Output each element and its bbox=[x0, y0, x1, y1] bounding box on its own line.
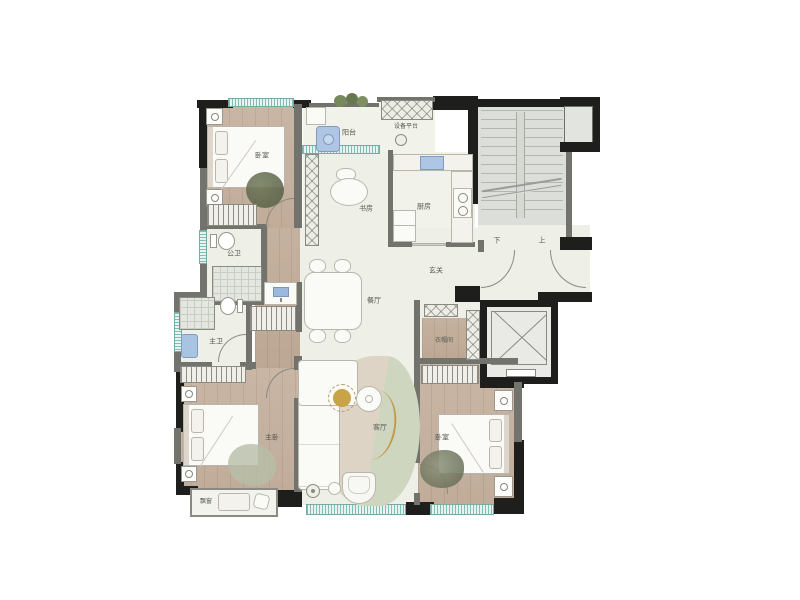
armchair-seat bbox=[348, 476, 370, 494]
wall bbox=[414, 493, 420, 505]
gold-ottoman-icon bbox=[333, 389, 351, 407]
fridge-divider bbox=[394, 225, 415, 226]
sink-icon bbox=[181, 334, 198, 358]
dining-table-icon bbox=[304, 272, 362, 330]
room-label-master-bath: 主卫 bbox=[209, 339, 223, 346]
window bbox=[228, 98, 294, 107]
stair-label-up: 上 bbox=[539, 238, 546, 245]
room-label-bay-window: 飘窗 bbox=[200, 499, 212, 505]
kitchen-door-threshold bbox=[412, 243, 446, 246]
side-table-icon bbox=[356, 386, 382, 412]
window bbox=[430, 504, 494, 515]
chair-icon bbox=[334, 329, 351, 343]
stair-stringer bbox=[516, 112, 525, 218]
cabinet-icon bbox=[424, 304, 458, 317]
burner bbox=[458, 206, 468, 216]
monitor-stand bbox=[280, 298, 282, 302]
chair-icon bbox=[309, 329, 326, 343]
elevator-car bbox=[491, 311, 547, 365]
bookcase-icon bbox=[305, 154, 319, 246]
pillow bbox=[215, 131, 228, 155]
headboard bbox=[504, 415, 509, 473]
louver-grid bbox=[381, 100, 433, 120]
window bbox=[306, 504, 406, 515]
burner bbox=[458, 193, 468, 203]
duct-shaft bbox=[564, 106, 593, 143]
wall bbox=[566, 152, 572, 237]
wall bbox=[455, 286, 480, 302]
chair-icon bbox=[334, 259, 351, 273]
pillow bbox=[489, 446, 502, 469]
wall bbox=[538, 292, 592, 302]
rug-icon bbox=[420, 450, 464, 488]
pillow bbox=[191, 437, 204, 461]
wardrobe-icon bbox=[207, 204, 257, 226]
pillow bbox=[191, 409, 204, 433]
wall bbox=[560, 237, 592, 250]
toilet-bowl bbox=[220, 297, 236, 315]
wall bbox=[476, 99, 566, 107]
fridge-icon bbox=[393, 210, 416, 242]
toilet-icon bbox=[210, 232, 236, 250]
nightstand-icon bbox=[494, 390, 513, 411]
window-slider bbox=[302, 145, 380, 154]
plant-icon bbox=[346, 93, 358, 105]
room-label-kitchen: 厨房 bbox=[417, 204, 431, 211]
pillow bbox=[489, 419, 502, 442]
chair-icon bbox=[309, 259, 326, 273]
drain-icon bbox=[395, 134, 407, 146]
headboard bbox=[208, 127, 213, 187]
room-label-entry: 玄关 bbox=[429, 268, 443, 275]
armchair-icon bbox=[342, 472, 376, 504]
wall bbox=[560, 142, 600, 152]
toilet-tank bbox=[237, 299, 243, 313]
room-label-balcony: 阳台 bbox=[342, 130, 356, 137]
room-label-bedroom1: 卧室 bbox=[255, 153, 269, 160]
kitchen-sink-icon bbox=[420, 156, 444, 170]
toilet-icon bbox=[220, 297, 244, 316]
rug-icon bbox=[228, 444, 276, 486]
elevator-sill bbox=[506, 369, 536, 377]
washing-machine-icon bbox=[316, 126, 340, 152]
bay-seat bbox=[218, 493, 250, 511]
wardrobe-icon bbox=[421, 365, 479, 384]
stove-icon bbox=[453, 188, 472, 218]
nightstand-icon bbox=[494, 476, 513, 497]
plant-icon bbox=[306, 484, 320, 498]
nightstand-icon bbox=[181, 386, 197, 402]
nightstand-icon bbox=[206, 108, 223, 125]
floor-plan: 卧室 阳台 设备平台 书房 厨房 玄关 下 上 公卫 主卫 餐厅 主卧 客厅 飘… bbox=[0, 0, 800, 600]
wall bbox=[276, 490, 302, 507]
monitor-icon bbox=[273, 287, 289, 297]
rug-icon bbox=[246, 172, 284, 208]
room-label-dining: 餐厅 bbox=[367, 298, 381, 305]
closet-icon bbox=[250, 306, 296, 331]
room-label-public-bath: 公卫 bbox=[227, 251, 241, 258]
headboard bbox=[184, 405, 189, 465]
study-table-icon bbox=[330, 178, 368, 206]
wall bbox=[388, 242, 412, 247]
bay-chair bbox=[252, 492, 270, 510]
plant-icon bbox=[334, 95, 347, 107]
pillow bbox=[215, 159, 228, 183]
room-label-living: 客厅 bbox=[373, 425, 387, 432]
plant-icon bbox=[357, 96, 368, 107]
plant-center bbox=[311, 489, 315, 493]
washer-drum bbox=[323, 134, 334, 145]
window bbox=[199, 230, 207, 264]
wardrobe-icon bbox=[180, 366, 246, 383]
wall bbox=[414, 300, 420, 385]
room-label-equipment: 设备平台 bbox=[394, 124, 418, 130]
cabinet-icon bbox=[466, 310, 480, 360]
shower-icon bbox=[179, 297, 215, 330]
toilet-tank bbox=[210, 234, 217, 248]
room-label-cloakroom: 衣帽间 bbox=[435, 338, 453, 344]
stool-icon bbox=[328, 482, 341, 495]
wall bbox=[514, 382, 522, 442]
stair-label-down: 下 bbox=[494, 238, 501, 245]
decor bbox=[365, 395, 373, 403]
wall bbox=[514, 440, 524, 504]
wall bbox=[174, 428, 181, 464]
nightstand-icon bbox=[181, 466, 197, 482]
room-label-master-bedroom: 主卧 bbox=[265, 435, 279, 442]
cabinet-icon bbox=[306, 107, 326, 125]
wall bbox=[294, 104, 302, 228]
desk-icon bbox=[264, 282, 297, 305]
toilet-bowl bbox=[218, 232, 235, 250]
room-label-bedroom2: 卧室 bbox=[435, 435, 449, 442]
room-label-study: 书房 bbox=[359, 206, 373, 213]
